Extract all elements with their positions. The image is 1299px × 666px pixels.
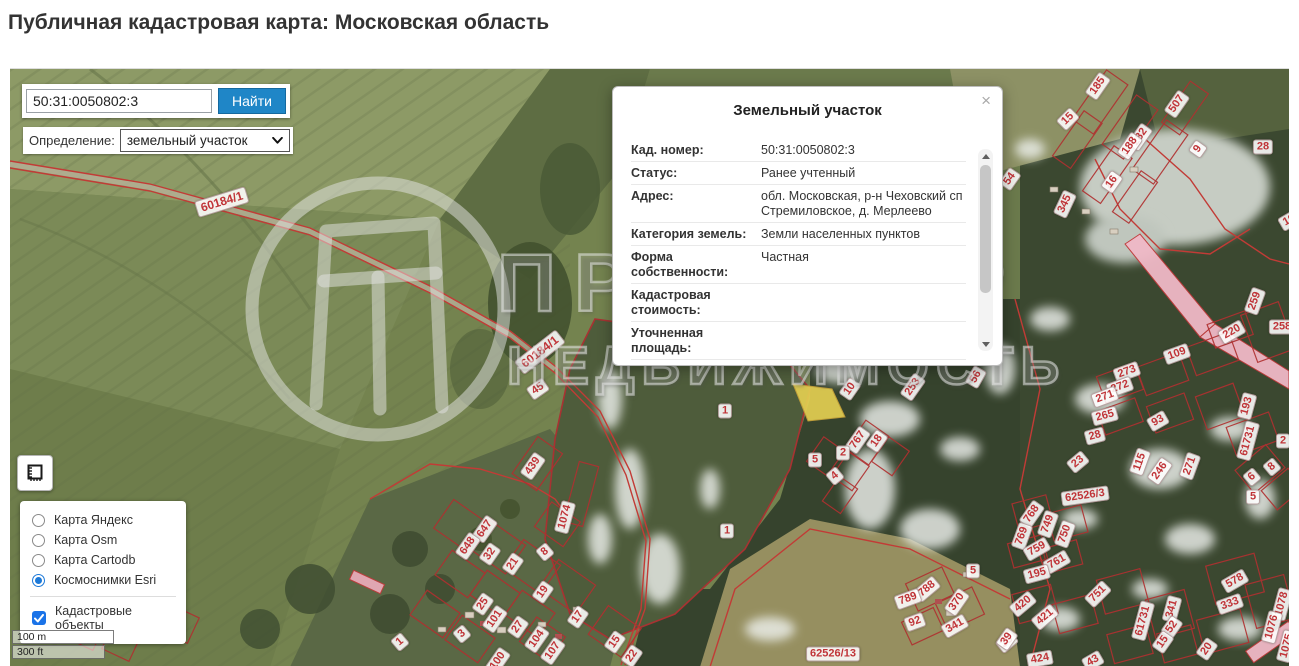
layer-option-label: Карта Cartodb bbox=[54, 553, 135, 567]
definition-selected-value: земельный участок bbox=[127, 133, 248, 148]
radio-icon[interactable] bbox=[32, 514, 45, 527]
layer-option-label: Космоснимки Esri bbox=[54, 573, 156, 587]
map-canvas[interactable]: 60184/160184/145111025356767182544391074… bbox=[10, 68, 1289, 666]
scroll-down-arrow-icon[interactable] bbox=[978, 338, 993, 350]
definition-label: Определение: bbox=[26, 133, 115, 148]
attr-value: 50:31:0050802:3 bbox=[761, 143, 966, 158]
search-input[interactable] bbox=[26, 89, 212, 113]
page-title: Публичная кадастровая карта: Московская … bbox=[8, 11, 549, 35]
layer-option-label: Карта Яндекс bbox=[54, 513, 133, 527]
layer-option-yandex[interactable]: Карта Яндекс bbox=[20, 510, 186, 530]
cadastral-objects-checkbox[interactable] bbox=[32, 611, 46, 625]
measure-tool-button[interactable] bbox=[17, 455, 53, 491]
attr-label: Кадастровая стоимость: bbox=[631, 288, 761, 318]
scale-imperial: 300 ft bbox=[12, 645, 105, 659]
ruler-square-icon bbox=[25, 463, 45, 483]
attr-label: Категория земель: bbox=[631, 227, 761, 242]
table-row: Адрес: обл. Московская, р-н Чеховский сп… bbox=[631, 185, 966, 223]
check-icon bbox=[34, 614, 44, 623]
attr-value: обл. Московская, р-н Чеховский сп Стреми… bbox=[761, 189, 966, 219]
attr-label: Статус: bbox=[631, 166, 761, 181]
definition-select[interactable]: земельный участок bbox=[120, 129, 290, 152]
table-row: Кадастровая стоимость: bbox=[631, 284, 966, 322]
layer-option-osm[interactable]: Карта Osm bbox=[20, 530, 186, 550]
table-row: Уточненная площадь: bbox=[631, 322, 966, 360]
attr-value bbox=[761, 326, 966, 356]
attr-label: Кад. номер: bbox=[631, 143, 761, 158]
table-row: Категория земель: Земли населенных пункт… bbox=[631, 223, 966, 246]
attr-value: Ранее учтенный bbox=[761, 166, 966, 181]
overlay-label: Кадастровые объекты bbox=[55, 604, 174, 632]
layer-option-esri[interactable]: Космоснимки Esri bbox=[20, 570, 186, 590]
attr-label: Уточненная площадь: bbox=[631, 326, 761, 356]
definition-row: Определение: земельный участок bbox=[23, 127, 293, 154]
search-widget: Найти bbox=[22, 84, 290, 118]
table-row: Статус: Ранее учтенный bbox=[631, 162, 966, 185]
attr-label: Адрес: bbox=[631, 189, 761, 219]
scale-metric: 100 m bbox=[12, 630, 114, 644]
chevron-down-icon bbox=[272, 137, 283, 144]
layer-option-label: Карта Osm bbox=[54, 533, 117, 547]
divider bbox=[30, 596, 176, 597]
scrollbar-thumb[interactable] bbox=[980, 165, 991, 293]
attr-value: Земли населенных пунктов bbox=[761, 227, 966, 242]
table-row: Форма собственности: Частная bbox=[631, 246, 966, 284]
attr-value bbox=[761, 288, 966, 318]
scale-control: 100 m 300 ft bbox=[12, 630, 114, 660]
layer-option-cartodb[interactable]: Карта Cartodb bbox=[20, 550, 186, 570]
search-button[interactable]: Найти bbox=[218, 88, 286, 114]
scroll-up-arrow-icon[interactable] bbox=[978, 150, 993, 162]
parcel-info-popup: × Земельный участок Кад. номер: 50:31:00… bbox=[612, 86, 1003, 366]
popup-attributes: Кад. номер: 50:31:0050802:3 Статус: Ране… bbox=[631, 139, 966, 360]
radio-icon[interactable] bbox=[32, 574, 45, 587]
popup-title: Земельный участок bbox=[613, 102, 1002, 119]
radio-icon[interactable] bbox=[32, 534, 45, 547]
table-row: Кад. номер: 50:31:0050802:3 bbox=[631, 139, 966, 162]
layers-panel: Карта Яндекс Карта Osm Карта Cartodb Кос… bbox=[20, 501, 186, 644]
close-icon[interactable]: × bbox=[981, 92, 991, 109]
attr-label: Форма собственности: bbox=[631, 250, 761, 280]
attr-value: Частная bbox=[761, 250, 966, 280]
page: Публичная кадастровая карта: Московская … bbox=[0, 0, 1299, 666]
popup-scrollbar[interactable] bbox=[978, 149, 993, 351]
radio-icon[interactable] bbox=[32, 554, 45, 567]
